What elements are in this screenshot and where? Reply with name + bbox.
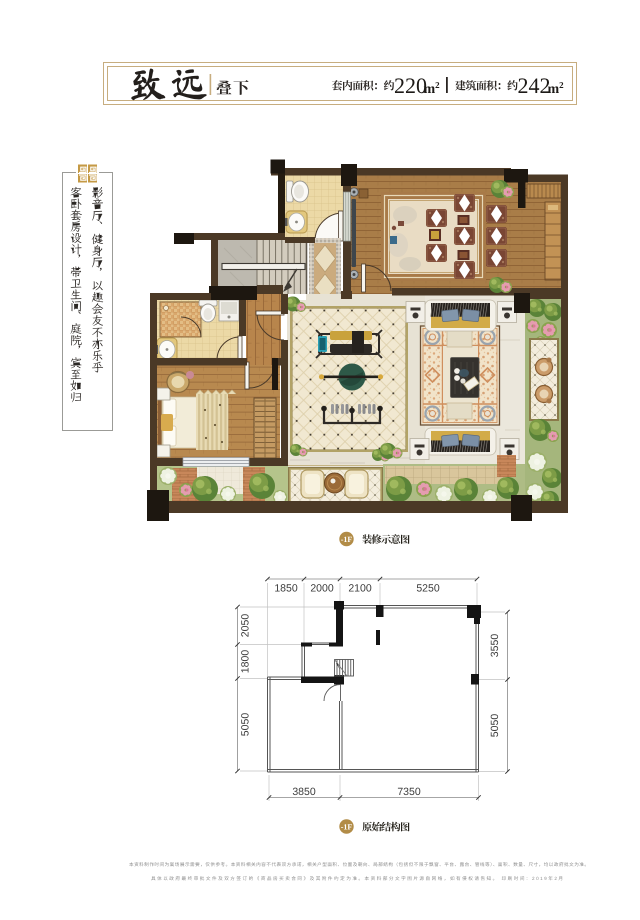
svg-text:3850: 3850 bbox=[292, 786, 316, 798]
svg-text:1850: 1850 bbox=[274, 583, 298, 595]
svg-text:-1F: -1F bbox=[341, 535, 353, 544]
svg-text:2050: 2050 bbox=[240, 614, 252, 638]
svg-text:5050: 5050 bbox=[240, 713, 252, 737]
svg-text:本资料制作时间为案场展示需要，仅供参考。本资料相关内容不代表: 本资料制作时间为案场展示需要，仅供参考。本资料相关内容不代表双方承诺，相关户型面… bbox=[129, 862, 589, 867]
svg-text:242: 242 bbox=[518, 73, 551, 98]
svg-text:3550: 3550 bbox=[489, 634, 501, 658]
svg-text:2100: 2100 bbox=[348, 583, 372, 595]
svg-text:220: 220 bbox=[394, 73, 427, 98]
svg-text:5050: 5050 bbox=[489, 714, 501, 738]
svg-text:1800: 1800 bbox=[240, 650, 252, 674]
svg-text:2000: 2000 bbox=[310, 583, 334, 595]
svg-text:5250: 5250 bbox=[416, 583, 440, 595]
svg-text:7350: 7350 bbox=[397, 786, 421, 798]
svg-text:-1F: -1F bbox=[341, 823, 353, 832]
